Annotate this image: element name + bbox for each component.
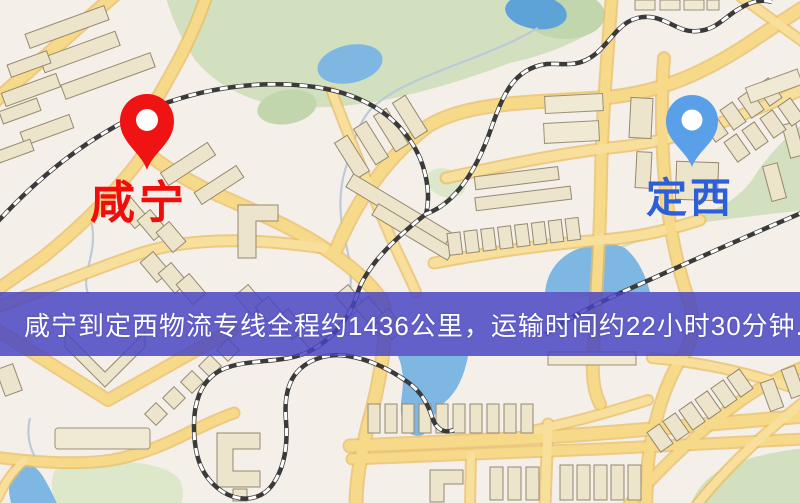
origin-pin-hole: [136, 109, 158, 131]
destination-label: 定西: [646, 175, 734, 221]
route-info-banner: 咸宁到定西物流专线全程约1436公里，运输时间约22小时30分钟.: [0, 292, 800, 356]
destination-pin-hole: [682, 110, 703, 131]
origin-label: 咸宁: [90, 177, 188, 228]
route-info-text: 咸宁到定西物流专线全程约1436公里，运输时间约22小时30分钟.: [24, 306, 800, 343]
map-image: 定西 咸宁 咸宁到定西物流专线全程约1436公里，运输时间约22小时30分钟.: [0, 0, 800, 503]
street-map-canvas: 定西 咸宁: [0, 0, 800, 503]
